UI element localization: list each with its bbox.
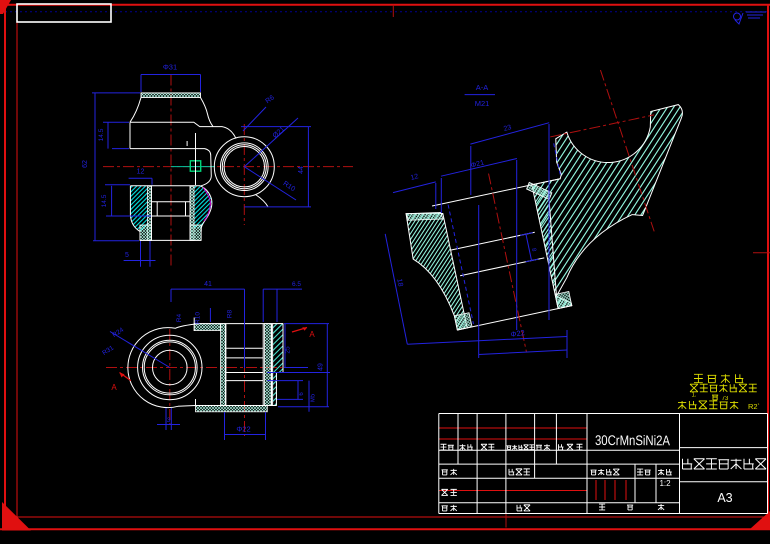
- svg-text:Φ31: Φ31: [163, 63, 177, 72]
- svg-text:M21: M21: [475, 99, 490, 108]
- svg-text:12: 12: [137, 169, 145, 176]
- svg-text:44: 44: [298, 166, 305, 174]
- svg-text:A-A: A-A: [476, 83, 489, 92]
- svg-text:14.5: 14.5: [98, 128, 105, 141]
- svg-text:1.: 1.: [691, 393, 696, 399]
- svg-text:R8: R8: [227, 309, 234, 318]
- svg-text:R2‵: R2‵: [748, 402, 760, 411]
- svg-text:6.5: 6.5: [292, 281, 301, 288]
- svg-text:Φ22: Φ22: [236, 425, 250, 434]
- svg-text:14.5: 14.5: [101, 194, 108, 207]
- svg-text:18: 18: [395, 278, 403, 287]
- svg-text:73: 73: [722, 396, 729, 402]
- svg-text:62: 62: [82, 160, 89, 168]
- svg-text:A: A: [111, 383, 117, 392]
- svg-text:41: 41: [204, 281, 212, 288]
- svg-text:R4: R4: [176, 313, 183, 322]
- svg-text:A: A: [309, 330, 315, 339]
- svg-text:49: 49: [318, 363, 325, 371]
- svg-text:M5: M5: [311, 393, 317, 402]
- svg-text:25: 25: [285, 346, 292, 354]
- svg-text:3: 3: [167, 417, 171, 424]
- svg-text:30CrMnSiNi2A: 30CrMnSiNi2A: [595, 432, 671, 448]
- svg-text:5: 5: [125, 252, 129, 259]
- svg-text:A3: A3: [717, 491, 732, 505]
- svg-text:1:2: 1:2: [659, 479, 671, 488]
- svg-text:R10: R10: [195, 312, 202, 324]
